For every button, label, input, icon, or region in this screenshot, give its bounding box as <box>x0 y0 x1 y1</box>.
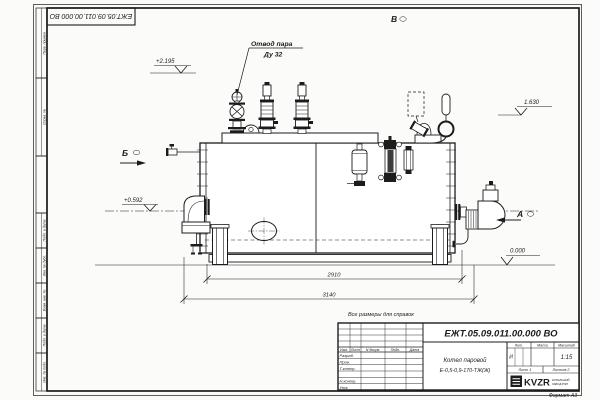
lit-value: И <box>509 355 513 361</box>
row-razrab: Разраб. <box>340 353 354 358</box>
skid-support-rear <box>431 225 449 265</box>
margin-label-perv-primen: Перв. примен. <box>43 31 47 54</box>
product-name: Котел паровой <box>443 357 487 364</box>
reference-note: Все размеры для справок <box>348 312 414 318</box>
scale-value: 1:15 <box>561 355 573 361</box>
margin-label-podp-data-1: Подп. и дата <box>43 219 47 241</box>
skid-support-front <box>211 225 229 265</box>
scale-label: Масштаб <box>558 343 576 347</box>
dimension-value: 3140 <box>323 293 337 299</box>
row-prov: Пров. <box>340 360 351 365</box>
steam-outlet-label: Отвод пара <box>251 40 293 48</box>
elevation-value: +0.592 <box>124 198 143 204</box>
elevation-burner-axis: +0.592 <box>122 198 158 211</box>
col-podp: Подп. <box>391 348 401 352</box>
stamp-doc-number: ЕЖТ.05.09.011.00.000 ВО <box>49 12 132 19</box>
product-model: Е-0,5-0,9-170-ТЖ(Ж) <box>440 368 491 374</box>
col-data: Дата <box>409 348 419 352</box>
elevation-value: 0.000 <box>510 249 526 255</box>
top-left-stamp: ЕЖТ.05.09.011.00.000 ВО <box>47 8 135 25</box>
col-list: Лист <box>350 348 360 352</box>
row-utv: Утв. <box>340 385 349 390</box>
view-letter: В <box>391 14 397 24</box>
steam-outlet-valve <box>228 89 246 133</box>
row-nkontr: Н.контр. <box>340 379 357 384</box>
front-vent-valve <box>166 144 200 156</box>
elevation-ground: 0.000 <box>501 249 540 265</box>
elevation-value: 1.630 <box>524 100 540 106</box>
motor <box>478 201 505 229</box>
col-izm: Изм. <box>340 348 348 352</box>
dimension-value: 2910 <box>327 273 342 279</box>
elevation-handle-level: 1.630 <box>498 100 552 115</box>
margin-label-vzam-inv: Взам. инв. № <box>42 289 46 311</box>
margin-label-inv-dubl: Инв. № дубл. <box>42 255 46 277</box>
brand-name: KVZR <box>524 378 550 389</box>
row-tkontr: Т.контр. <box>340 366 356 371</box>
feed-pump <box>453 181 506 247</box>
mass-label: Масса <box>537 343 548 347</box>
view-letter: Б <box>122 148 128 158</box>
brand-sub-2: ЗАВОД РЭП <box>552 382 568 386</box>
boiler-top-plate <box>222 124 441 144</box>
elevation-value: +2.195 <box>156 59 175 65</box>
drawing-sheet: Перв. примен. Справ. № Подп. и дата Инв.… <box>0 0 600 400</box>
view-label-v: В <box>391 14 406 24</box>
elevation-valve-top: +2.195 <box>150 59 196 73</box>
margin-label-sprav-no: Справ. № <box>43 109 47 125</box>
sheet-number: Лист 1 <box>518 368 532 372</box>
margin-labels: Перв. примен. Справ. № Подп. и дата Инв.… <box>42 31 46 383</box>
safety-valve-2 <box>294 82 314 134</box>
margin-label-podp-data-2: Подп. и дата <box>42 324 46 346</box>
sheets-total: Листов 2 <box>552 368 571 372</box>
format-label: Формат А3 <box>549 393 577 399</box>
gauge-glass-2 <box>404 146 413 174</box>
col-doc: N докум. <box>366 348 381 352</box>
doc-number: ЕЖТ.05.09.011.00.000 ВО <box>444 329 558 340</box>
view-letter: А <box>516 209 523 219</box>
lit-label: Лит. <box>514 343 523 347</box>
sensor-phantom-box <box>408 92 429 137</box>
margin-label-inv-podl: Инв. № подл. <box>42 361 46 383</box>
steam-outlet-dn-label: Ду 32 <box>263 52 283 59</box>
title-block: Изм. Лист N докум. Подп. Дата Разраб. Пр… <box>338 323 579 390</box>
safety-valve-1 <box>259 82 279 134</box>
boiler-shell <box>197 143 456 253</box>
view-label-b: Б <box>120 148 146 166</box>
